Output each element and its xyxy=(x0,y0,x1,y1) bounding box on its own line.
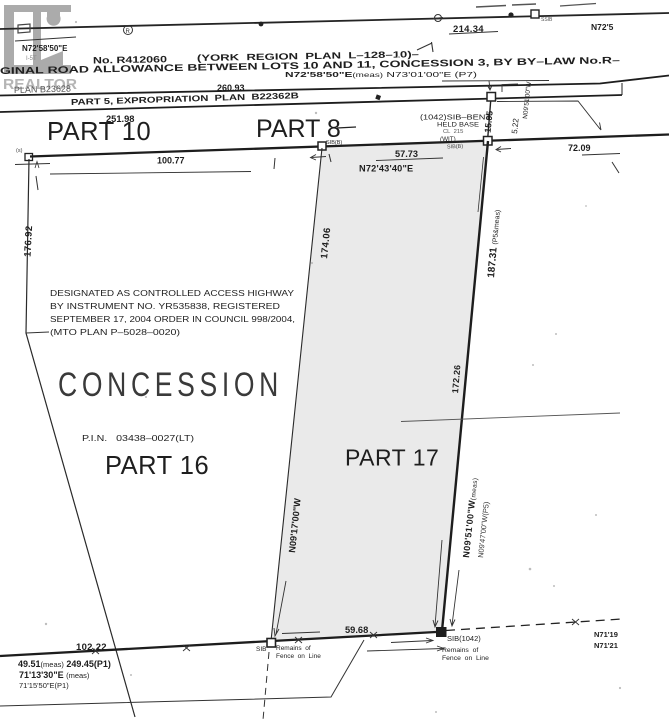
svg-text:102.22: 102.22 xyxy=(76,642,107,653)
svg-text:SIB(1042): SIB(1042) xyxy=(447,634,481,643)
svg-text:I-5T: I-5T xyxy=(26,56,37,62)
svg-text:PART 17: PART 17 xyxy=(345,445,439,471)
svg-text:DESIGNATED AS CONTROLLED ACCES: DESIGNATED AS CONTROLLED ACCESS HIGHWAY xyxy=(50,289,295,298)
svg-text:N72'5: N72'5 xyxy=(591,22,614,32)
svg-text:72.09: 72.09 xyxy=(568,143,591,153)
svg-text:49.51(meas) 249.45(P1): 49.51(meas) 249.45(P1) xyxy=(18,659,111,669)
svg-text:SEPTEMBER 17, 2004 ORDER IN CO: SEPTEMBER 17, 2004 ORDER IN COUNCIL 998/… xyxy=(50,315,295,324)
svg-text:N71'19: N71'19 xyxy=(594,630,618,639)
svg-text:Remains of: Remains of xyxy=(276,645,311,652)
svg-text:N72'58'50"E: N72'58'50"E xyxy=(22,44,68,53)
svg-text:N71'21: N71'21 xyxy=(594,641,618,650)
svg-text:SIB(B): SIB(B) xyxy=(447,144,464,151)
svg-text:59.68: 59.68 xyxy=(345,625,368,635)
svg-text:PLAN B23628: PLAN B23628 xyxy=(14,84,71,95)
svg-text:57.73: 57.73 xyxy=(395,149,418,159)
svg-text:(s): (s) xyxy=(16,148,23,154)
svg-text:(1042)SIB–BENT: (1042)SIB–BENT xyxy=(420,113,492,122)
svg-text:CONCESSION: CONCESSION xyxy=(58,366,283,404)
svg-text:Fence on Line: Fence on Line xyxy=(442,655,489,662)
svg-text:(WIT): (WIT) xyxy=(440,136,456,143)
svg-text:Fence on Line: Fence on Line xyxy=(276,653,321,660)
svg-text:100.77: 100.77 xyxy=(157,156,185,166)
svg-text:P.I.N. 03438–0027(LT): P.I.N. 03438–0027(LT) xyxy=(82,433,194,443)
svg-text:SSIB: SSIB xyxy=(541,17,553,23)
svg-text:HELD BASE: HELD BASE xyxy=(437,122,480,129)
svg-text:BY INSTRUMENT NO. YR535838, RE: BY INSTRUMENT NO. YR535838, REGISTERED xyxy=(50,302,280,311)
svg-text:SIB: SIB xyxy=(256,646,266,653)
svg-text:R: R xyxy=(126,29,131,35)
svg-text:(MTO PLAN P–5028–0020): (MTO PLAN P–5028–0020) xyxy=(50,328,180,337)
svg-text:Remains of: Remains of xyxy=(442,647,478,654)
svg-text:CL 215: CL 215 xyxy=(443,129,463,135)
svg-text:SIB(B): SIB(B) xyxy=(326,140,342,146)
svg-text:PART 10: PART 10 xyxy=(47,118,151,146)
svg-text:71'15'50"E(P1): 71'15'50"E(P1) xyxy=(19,681,69,690)
svg-text:176.92: 176.92 xyxy=(23,225,36,257)
svg-text:N72'58'50"E(meas) N73'01'00"E: N72'58'50"E(meas) N73'01'00"E (P7) xyxy=(285,70,478,79)
svg-text:N72'43'40"E: N72'43'40"E xyxy=(359,164,413,174)
svg-text:5.22: 5.22 xyxy=(510,117,521,134)
svg-text:71'13'30"E (meas): 71'13'30"E (meas) xyxy=(19,670,90,680)
svg-text:PART 16: PART 16 xyxy=(105,452,209,480)
svg-text:PART 8: PART 8 xyxy=(256,115,341,143)
